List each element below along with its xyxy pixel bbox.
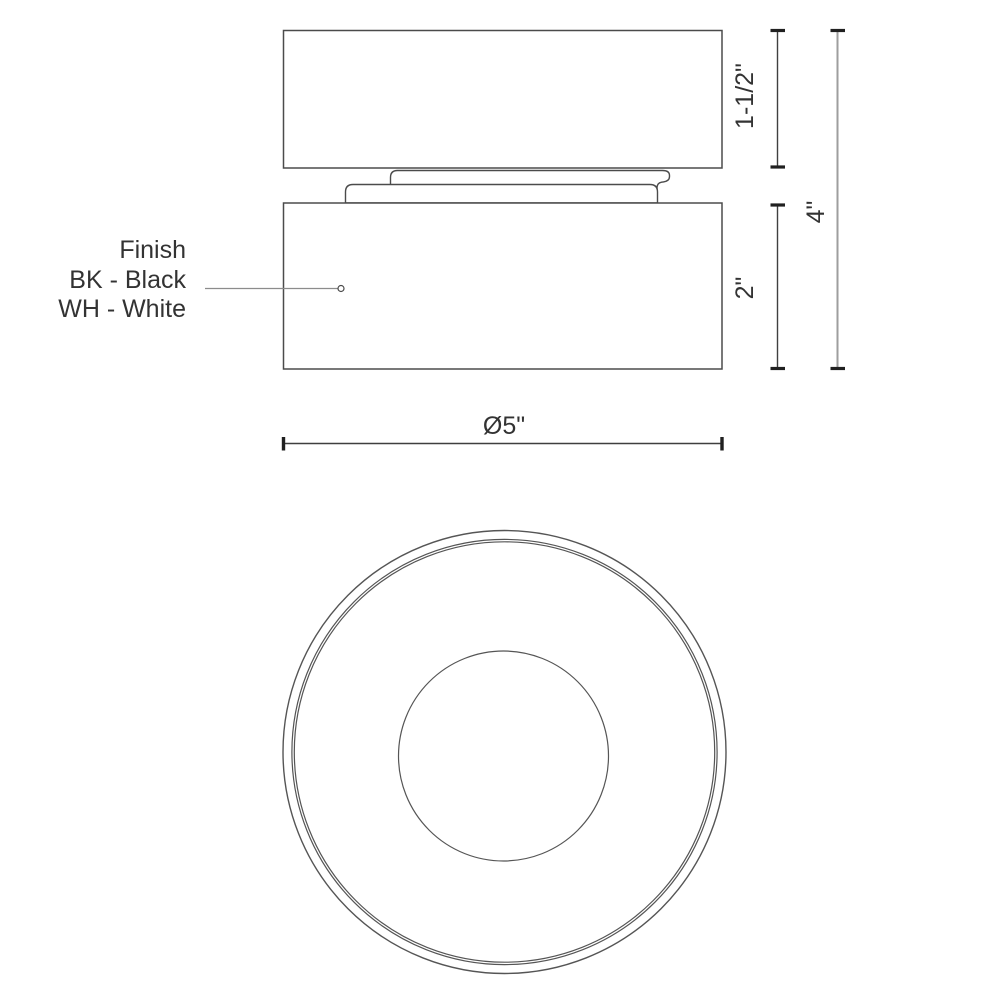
trim-ring-inner-circle bbox=[294, 542, 714, 962]
finish-option-white: WH - White bbox=[40, 295, 186, 325]
lens-circle bbox=[399, 651, 609, 861]
swivel-lower-band bbox=[346, 185, 658, 204]
dimension-label-canopy-height: 1-1/2" bbox=[731, 63, 759, 129]
dimension-label-body-height: 2" bbox=[731, 277, 759, 300]
dimension-label-diameter: Ø5" bbox=[483, 412, 525, 440]
fixture-dimension-drawing: 1-1/2" 2" 4" Ø5" bbox=[0, 0, 1000, 1000]
finish-option-black: BK - Black bbox=[40, 266, 186, 296]
finish-note: Finish BK - Black WH - White bbox=[40, 236, 186, 325]
canopy-outline bbox=[284, 31, 723, 169]
body-outline bbox=[284, 203, 723, 369]
fixture-outer-circle bbox=[283, 531, 726, 974]
finish-note-title: Finish bbox=[40, 236, 186, 266]
finish-leader-dot bbox=[338, 286, 344, 292]
dimension-label-overall-height: 4" bbox=[802, 201, 830, 224]
technical-drawing-page: 1-1/2" 2" 4" Ø5" Finish BK - Black WH - … bbox=[0, 0, 1000, 1000]
